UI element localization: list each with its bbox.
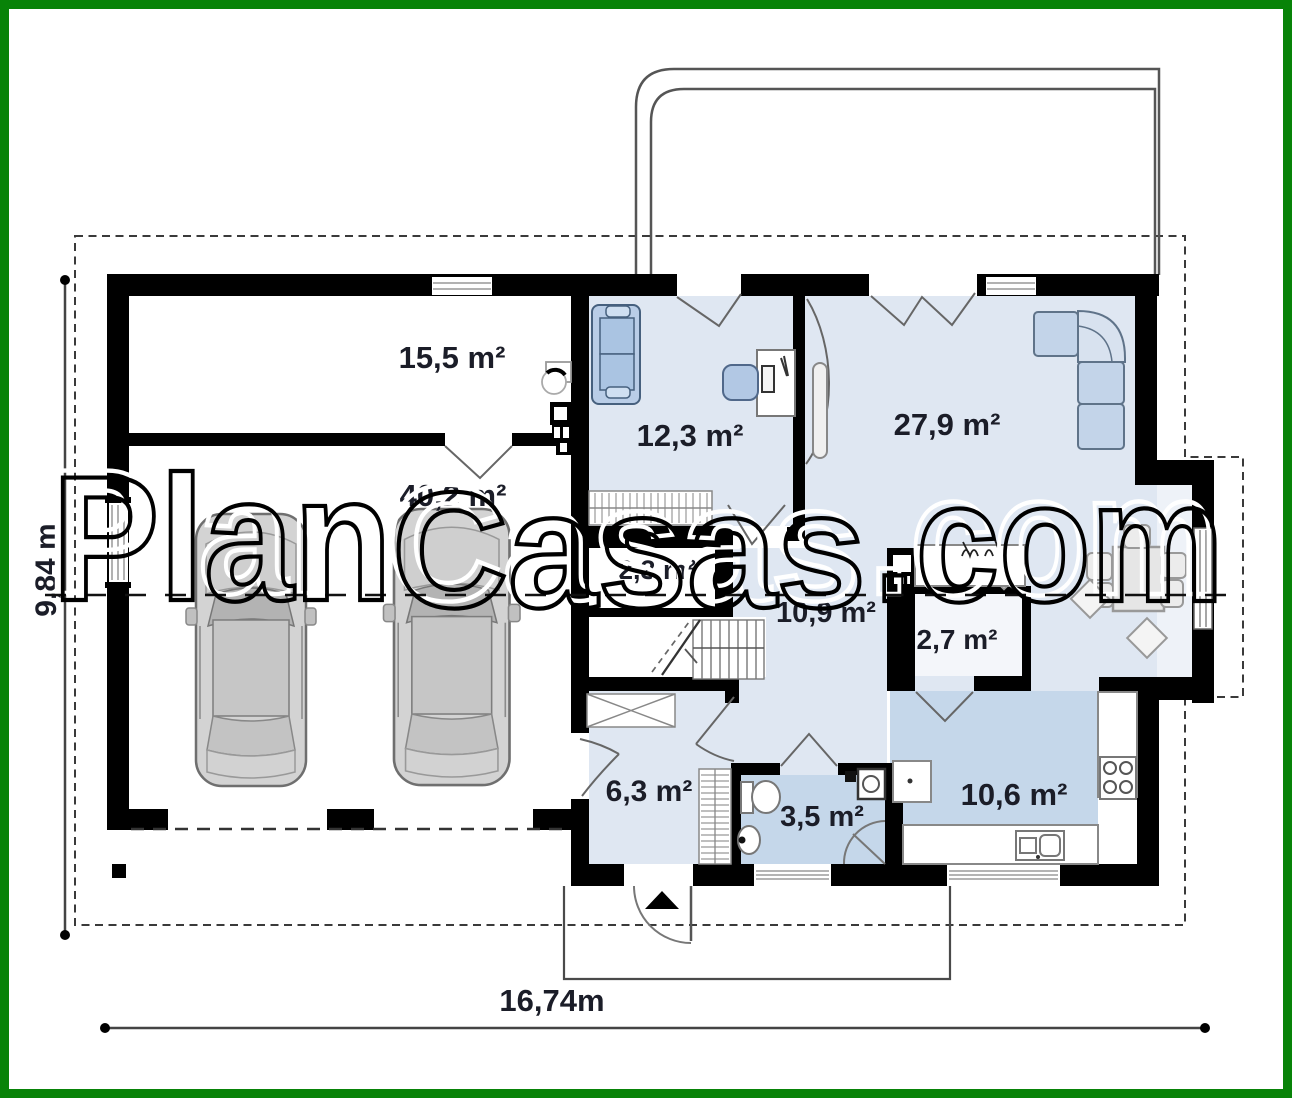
svg-text:Plan: Plan bbox=[52, 439, 392, 638]
svg-text:6,3 m²: 6,3 m² bbox=[606, 775, 693, 808]
svg-text:27,9 m²: 27,9 m² bbox=[894, 407, 1001, 442]
svg-text:3,5 m²: 3,5 m² bbox=[780, 801, 864, 833]
svg-text:.com: .com bbox=[874, 446, 1224, 638]
svg-text:12,3 m²: 12,3 m² bbox=[637, 418, 744, 453]
svg-text:Casas: Casas bbox=[392, 458, 866, 642]
svg-text:16,74m: 16,74m bbox=[499, 983, 604, 1018]
svg-text:10,6 m²: 10,6 m² bbox=[961, 777, 1068, 812]
svg-text:15,5 m²: 15,5 m² bbox=[399, 340, 506, 375]
